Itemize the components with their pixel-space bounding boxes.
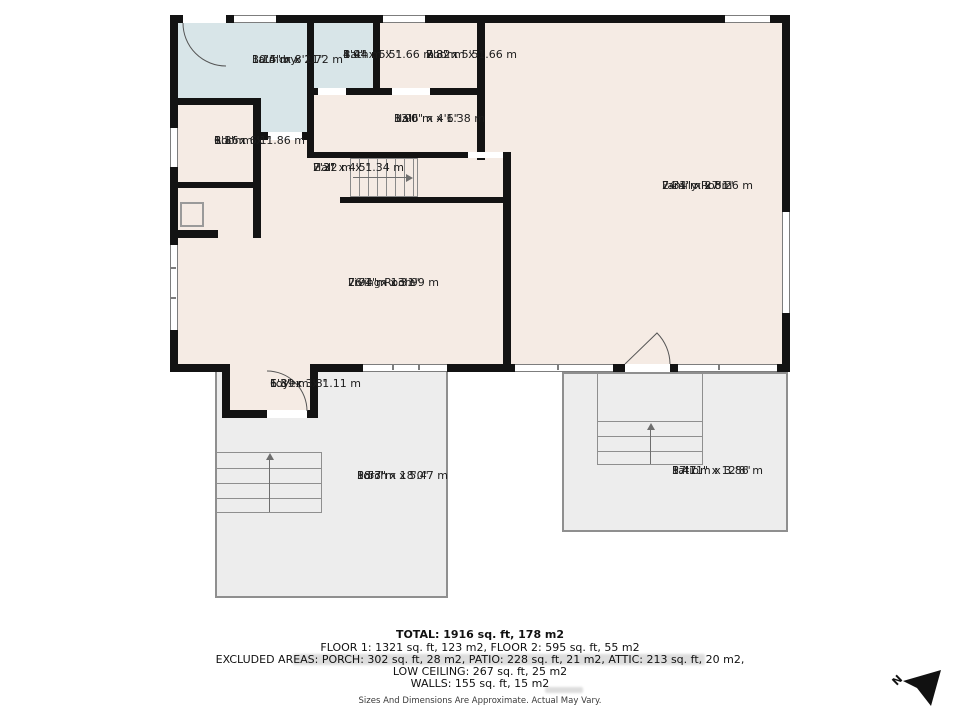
step-line xyxy=(598,421,702,422)
door-opening xyxy=(267,410,307,418)
room-opening xyxy=(230,364,310,372)
wall-segment xyxy=(782,15,790,372)
room-dims-metric: 7.94 m x 3.99 m xyxy=(348,276,439,289)
closet xyxy=(180,202,204,227)
room-dims-metric: 5.57 m x 5.47 m xyxy=(357,469,448,482)
window xyxy=(234,15,276,23)
window xyxy=(363,364,447,372)
door-opening xyxy=(183,15,226,23)
window-mullion xyxy=(392,365,394,370)
window xyxy=(782,212,790,313)
room-dims-metric: 3.15 m x 2.72 m xyxy=(252,53,343,66)
door-opening xyxy=(392,88,430,95)
wall-segment xyxy=(170,230,218,238)
summary-total: TOTAL: 1916 sq. ft, 178 m2 xyxy=(0,628,960,641)
stairs-direction-line xyxy=(353,177,407,178)
summary-walls: WALLS: 155 sq. ft, 15 m2 xyxy=(0,677,960,690)
wall-segment xyxy=(503,152,511,372)
window-mullion xyxy=(171,267,176,269)
stairs-right-arrow-icon xyxy=(406,174,413,182)
room-dims-metric: 3.96 m x 1.38 m xyxy=(394,112,485,125)
window xyxy=(725,15,770,23)
window-mullion xyxy=(171,297,176,299)
floor-plan: N Laundry 10'4" x 8'11" 3.15 m x 2.72 m … xyxy=(0,0,960,720)
steps-direction-line xyxy=(269,459,270,512)
window xyxy=(383,15,425,23)
steps-up-arrow-icon xyxy=(647,423,655,430)
room-dims-metric: 5.47 m x 3.86 m xyxy=(672,464,763,477)
wall-segment xyxy=(170,98,257,105)
window-mullion xyxy=(718,365,720,370)
wall-segment xyxy=(253,98,261,238)
room-dims-metric: 1.89 m x 1.11 m xyxy=(270,377,361,390)
room-dims-metric: 2.22 m x 1.34 m xyxy=(313,161,404,174)
room-dims-metric: 2.32 m x 1.66 m xyxy=(426,48,517,61)
window xyxy=(678,364,777,372)
mudroom-floor xyxy=(261,98,307,136)
wall-segment xyxy=(340,197,511,203)
porch-steps xyxy=(216,452,322,513)
window-mullion xyxy=(557,365,559,370)
door-opening xyxy=(318,88,346,95)
door-opening xyxy=(625,364,670,372)
steps-direction-line xyxy=(650,429,651,464)
window xyxy=(170,245,178,330)
wall-segment xyxy=(477,23,485,160)
room-dims-metric: 1.86 m x 1.86 m xyxy=(214,134,305,147)
room-dims-metric: 7.34 m x 8.26 m xyxy=(662,179,753,192)
steps-up-arrow-icon xyxy=(266,453,274,460)
window xyxy=(515,364,613,372)
door-opening xyxy=(468,152,503,158)
room-dims-metric: 1.44 m x 1.66 m xyxy=(343,48,434,61)
window-mullion xyxy=(418,365,420,370)
patio-steps xyxy=(597,372,703,465)
window xyxy=(170,128,178,167)
disclaimer: Sizes And Dimensions Are Approximate. Ac… xyxy=(0,696,960,706)
wall-segment xyxy=(170,182,257,188)
